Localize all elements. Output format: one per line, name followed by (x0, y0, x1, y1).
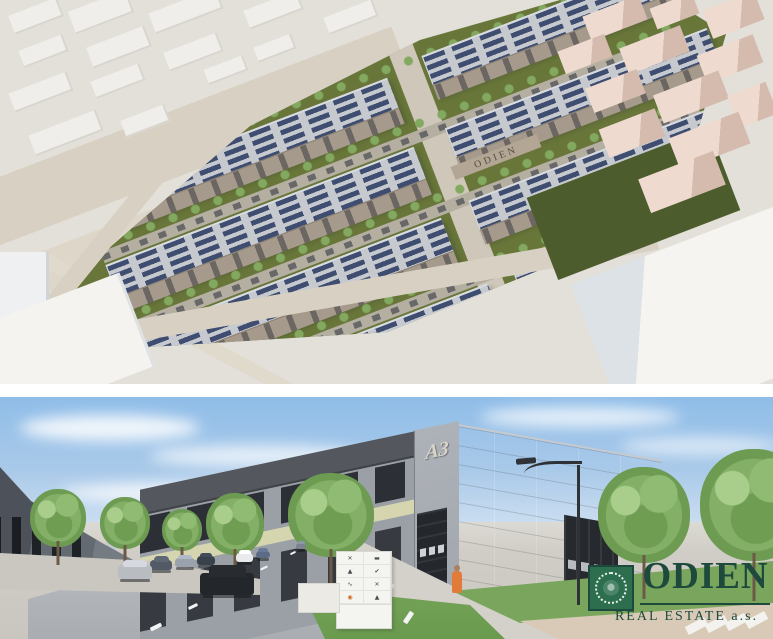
context-building (8, 72, 73, 113)
context-building (148, 0, 223, 34)
logo-rule (640, 603, 770, 605)
context-building (91, 63, 146, 98)
dark-car (200, 573, 254, 595)
odien-subtitle-text: REAL ESTATE a.s. (602, 609, 771, 625)
cloud (20, 415, 200, 441)
street-level-render: A3 (0, 397, 773, 639)
odien-logo: ODIEN REAL ESTATE a.s. (588, 561, 771, 635)
silver-car (118, 565, 152, 579)
context-building (253, 33, 296, 62)
panel-divider (0, 384, 773, 397)
context-building (18, 34, 68, 68)
context-building-pink (702, 0, 764, 39)
pedestrian (452, 565, 462, 597)
building-label: A3 (415, 435, 459, 467)
odien-brand-text: ODIEN (640, 555, 771, 599)
under-armour-logo-icon: ✕ (364, 578, 391, 591)
context-building (324, 0, 379, 35)
certification-logo-icon: ◉ (337, 591, 364, 604)
tenant-sign-grid: ✕ ▬ ▲ ✔ ∿ ✕ ◉ ▲ (337, 552, 391, 605)
parked-van (236, 553, 253, 562)
cloud (480, 407, 680, 427)
wordmark-logo-icon: ▬ (364, 552, 391, 565)
distant-car (296, 543, 306, 549)
render-collage: ODIEN (0, 0, 773, 639)
adidas-logo-icon: ▲ (364, 591, 391, 604)
context-building (204, 55, 249, 85)
parked-car (256, 551, 270, 558)
low-wall (298, 583, 340, 613)
street-lamp-pole (577, 465, 580, 605)
context-building (8, 0, 64, 35)
context-building (86, 26, 152, 69)
parked-car (175, 558, 195, 567)
tree (30, 489, 86, 565)
odien-emblem-icon (588, 565, 634, 611)
nike-logo-icon: ✔ (364, 565, 391, 578)
context-building (243, 0, 303, 30)
context-building (68, 0, 134, 34)
aerial-site-render: ODIEN (0, 0, 773, 384)
adidas-logo-icon: ▲ (337, 565, 364, 578)
tenant-sign: ✕ ▬ ▲ ✔ ∿ ✕ ◉ ▲ (336, 551, 392, 629)
door-panes (420, 544, 444, 557)
parked-car (150, 560, 172, 570)
puma-logo-icon: ∿ (337, 578, 364, 591)
parked-car (197, 556, 215, 565)
tree (100, 497, 150, 567)
under-armour-logo-icon: ✕ (337, 552, 364, 565)
